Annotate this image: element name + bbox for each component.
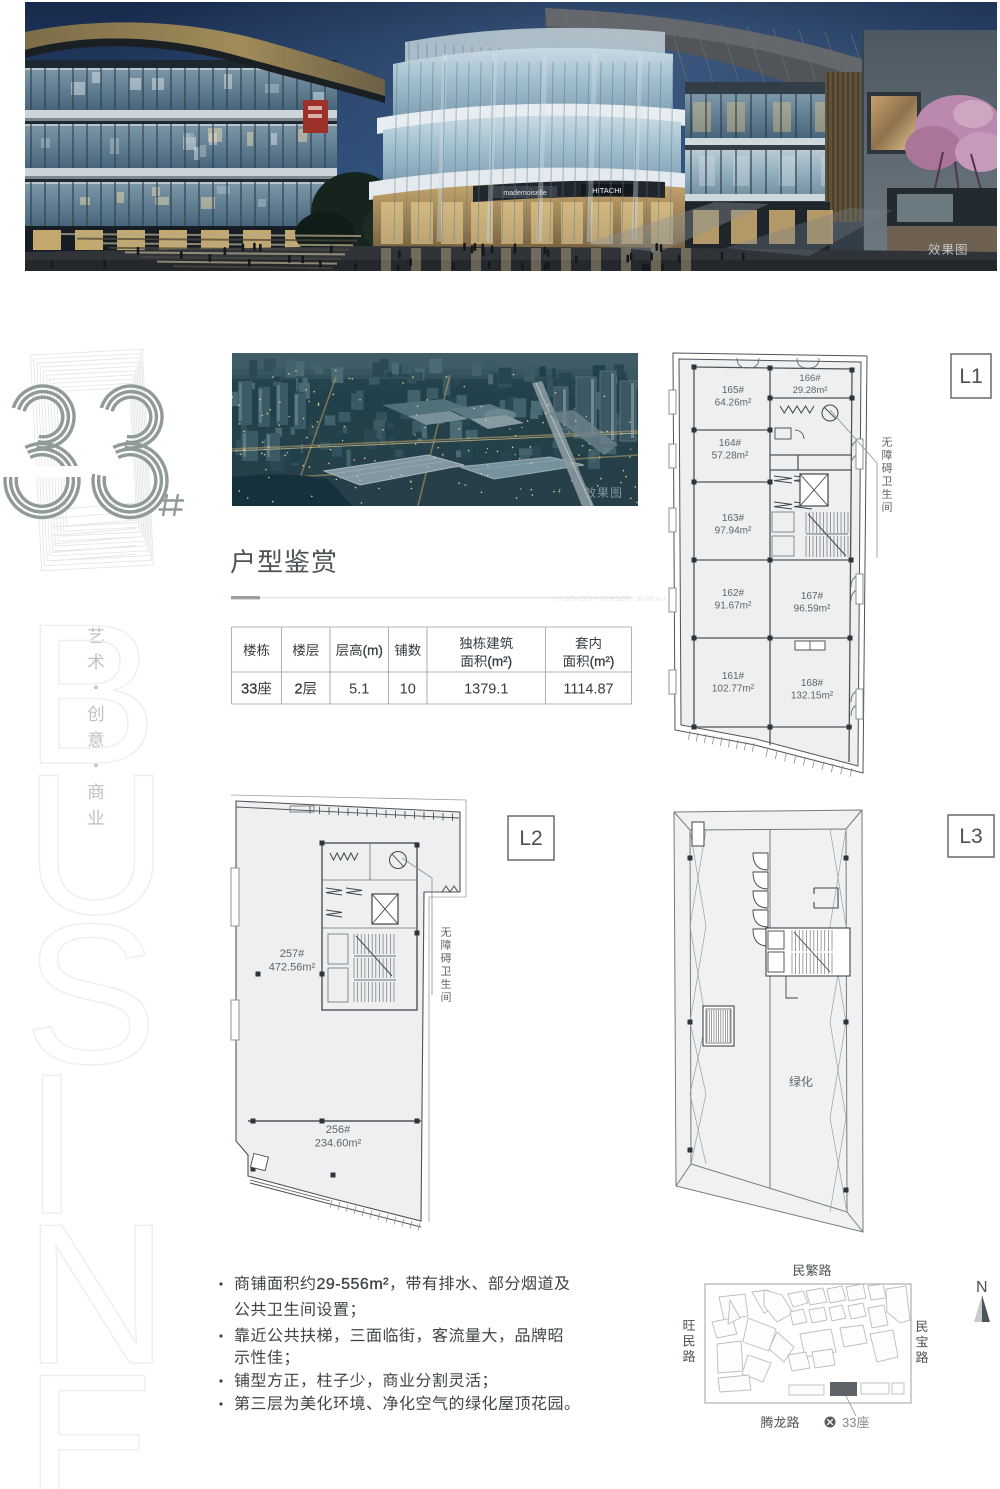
svg-text:S: S bbox=[24, 1483, 157, 1489]
svg-text:167#: 167# bbox=[801, 591, 824, 602]
svg-text:257#: 257# bbox=[280, 948, 305, 960]
svg-text:166#: 166# bbox=[799, 373, 821, 384]
svg-text:(m): (m) bbox=[363, 643, 383, 658]
svg-text:168#: 168# bbox=[801, 678, 824, 689]
svg-text:163#: 163# bbox=[722, 513, 745, 524]
svg-text:2: 2 bbox=[294, 682, 302, 698]
svg-text:472.56m²: 472.56m² bbox=[269, 962, 316, 974]
svg-text:E: E bbox=[24, 1333, 157, 1489]
svg-text:234.60m²: 234.60m² bbox=[315, 1138, 362, 1150]
svg-text:256#: 256# bbox=[326, 1124, 351, 1136]
svg-text:29.28m²: 29.28m² bbox=[793, 385, 828, 396]
svg-text:33: 33 bbox=[241, 682, 257, 698]
svg-text:1114.87: 1114.87 bbox=[563, 682, 613, 698]
svg-text:HITACHI: HITACHI bbox=[592, 186, 621, 195]
svg-text:96.59m²: 96.59m² bbox=[794, 604, 831, 615]
svg-text:33: 33 bbox=[842, 1415, 856, 1430]
svg-text:5.1: 5.1 bbox=[349, 682, 369, 698]
svg-text:N: N bbox=[976, 1279, 988, 1296]
svg-text:(m²): (m²) bbox=[590, 654, 615, 669]
svg-text:L3: L3 bbox=[959, 825, 982, 848]
svg-text:(m²): (m²) bbox=[487, 654, 512, 669]
svg-text:29-556m²: 29-556m² bbox=[317, 1276, 390, 1293]
svg-text:91.67m²: 91.67m² bbox=[715, 601, 752, 612]
svg-text:161#: 161# bbox=[722, 671, 745, 682]
svg-text:102.77m²: 102.77m² bbox=[712, 684, 755, 695]
svg-text:L2: L2 bbox=[519, 827, 542, 850]
svg-text:162#: 162# bbox=[722, 588, 745, 599]
svg-text:165#: 165# bbox=[722, 385, 745, 396]
svg-text:64.26m²: 64.26m² bbox=[715, 398, 752, 409]
svg-text:132.15m²: 132.15m² bbox=[791, 691, 834, 702]
svg-text:L1: L1 bbox=[959, 365, 982, 388]
svg-text:HT CONCEPT NURSERY BUREAU: HT CONCEPT NURSERY BUREAU bbox=[553, 596, 665, 603]
svg-text:57.28m²: 57.28m² bbox=[712, 451, 749, 462]
svg-text:1379.1: 1379.1 bbox=[464, 682, 508, 698]
svg-text:10: 10 bbox=[400, 682, 416, 698]
svg-text:164#: 164# bbox=[719, 438, 742, 449]
svg-text:97.94m²: 97.94m² bbox=[715, 526, 752, 537]
